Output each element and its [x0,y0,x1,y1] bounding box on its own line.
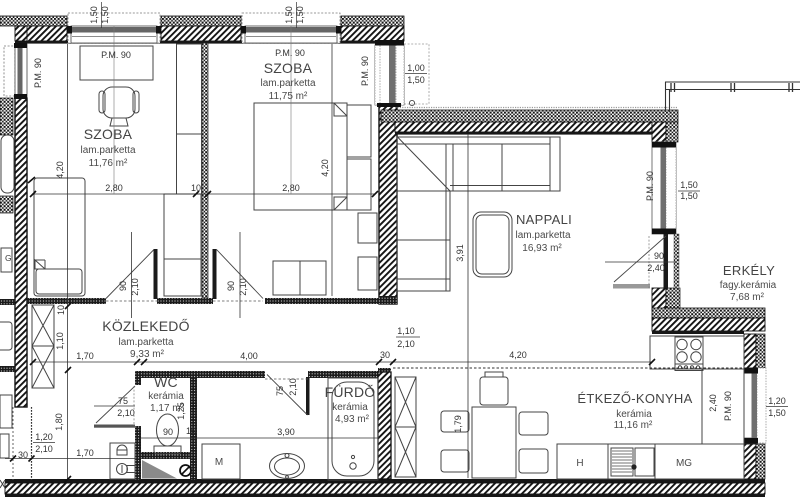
svg-text:M: M [215,457,223,468]
svg-text:P.M. 90: P.M. 90 [275,48,305,58]
svg-text:lam.parketta: lam.parketta [260,78,315,89]
svg-text:90: 90 [226,281,236,291]
svg-text:30: 30 [18,450,28,460]
svg-text:90: 90 [118,281,128,291]
svg-text:P.M. 90: P.M. 90 [101,50,131,60]
svg-text:3,91: 3,91 [455,244,465,262]
svg-text:SZOBA: SZOBA [84,126,133,142]
svg-text:P.M. 90: P.M. 90 [645,171,655,201]
svg-text:MG: MG [676,458,692,469]
svg-text:4,00: 4,00 [240,351,258,361]
svg-text:WC: WC [154,374,178,390]
svg-text:30: 30 [380,350,390,360]
svg-text:9,33 m²: 9,33 m² [130,349,165,360]
svg-text:1,25: 1,25 [176,402,186,420]
svg-text:1,50: 1,50 [407,75,425,85]
svg-text:1,10: 1,10 [397,326,415,336]
svg-text:1,50: 1,50 [768,408,786,418]
svg-text:2,10: 2,10 [397,339,415,349]
svg-text:90: 90 [163,427,173,437]
svg-text:fagy.kerámia: fagy.kerámia [720,280,777,291]
svg-text:2,10: 2,10 [35,444,53,454]
svg-text:4,93 m²: 4,93 m² [335,414,370,425]
svg-text:1,20: 1,20 [35,432,53,442]
svg-text:1,10: 1,10 [55,332,65,350]
svg-text:G: G [5,253,12,263]
svg-text:lam.parketta: lam.parketta [515,230,570,241]
svg-text:2,40: 2,40 [647,263,665,273]
svg-text:7,68 m²: 7,68 m² [730,292,765,303]
svg-text:KÖZLEKEDŐ: KÖZLEKEDŐ [102,317,189,334]
svg-text:2,10: 2,10 [117,408,135,418]
svg-text:1,00: 1,00 [407,63,425,73]
svg-text:lam.parketta: lam.parketta [118,337,173,348]
svg-text:SZOBA: SZOBA [264,60,313,76]
svg-text:4,20: 4,20 [320,159,330,177]
svg-text:2,10: 2,10 [238,278,248,296]
svg-text:90: 90 [654,251,664,261]
svg-text:2,80: 2,80 [282,183,300,193]
svg-text:1,50: 1,50 [295,6,305,24]
svg-text:1,79: 1,79 [453,415,463,433]
svg-text:2,40: 2,40 [708,394,718,412]
svg-text:FÜRDŐ: FÜRDŐ [325,383,376,400]
svg-text:16,93 m²: 16,93 m² [522,243,562,254]
svg-text:H: H [576,458,583,469]
svg-text:kerámia: kerámia [332,402,368,413]
svg-text:lam.parketta: lam.parketta [80,145,135,156]
svg-text:2,80: 2,80 [105,183,123,193]
svg-text:10: 10 [186,426,196,436]
svg-text:75: 75 [275,386,285,396]
svg-text:P.M. 90: P.M. 90 [723,391,733,421]
svg-text:1,70: 1,70 [76,448,94,458]
svg-text:kerámia: kerámia [148,391,184,402]
svg-text:75: 75 [118,396,128,406]
svg-text:4,20: 4,20 [509,350,527,360]
svg-text:1,20: 1,20 [768,396,786,406]
svg-text:3,90: 3,90 [277,427,295,437]
svg-text:ERKÉLY: ERKÉLY [723,263,775,278]
svg-text:11,16 m²: 11,16 m² [614,420,653,431]
svg-text:ÉTKEZŐ-KONYHA: ÉTKEZŐ-KONYHA [577,391,692,406]
svg-text:P.M. 90: P.M. 90 [33,58,43,88]
svg-text:1,50: 1,50 [89,6,99,24]
svg-text:P.M. 90: P.M. 90 [360,56,370,86]
svg-text:1,70: 1,70 [76,351,94,361]
svg-text:2,10: 2,10 [130,278,140,296]
svg-text:1,50: 1,50 [680,180,698,190]
svg-text:10: 10 [191,183,201,193]
svg-text:NAPPALI: NAPPALI [516,212,572,227]
svg-text:11,75 m²: 11,75 m² [269,91,308,102]
svg-text:10: 10 [56,305,66,315]
svg-text:1,50: 1,50 [100,6,110,24]
svg-text:kerámia: kerámia [616,409,652,420]
svg-text:1,50: 1,50 [284,6,294,24]
svg-text:1,50: 1,50 [680,191,698,201]
svg-text:11,76 m²: 11,76 m² [89,158,128,169]
svg-text:2,10: 2,10 [288,378,298,396]
svg-text:1,80: 1,80 [54,413,64,431]
svg-text:4,20: 4,20 [55,161,65,179]
